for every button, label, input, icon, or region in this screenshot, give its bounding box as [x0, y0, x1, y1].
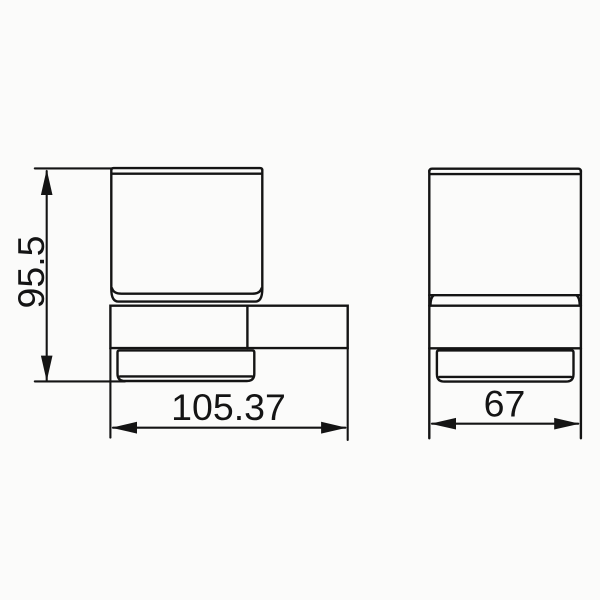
svg-text:105.37: 105.37 — [171, 386, 286, 428]
svg-text:95.5: 95.5 — [10, 236, 52, 309]
svg-text:67: 67 — [484, 383, 526, 425]
